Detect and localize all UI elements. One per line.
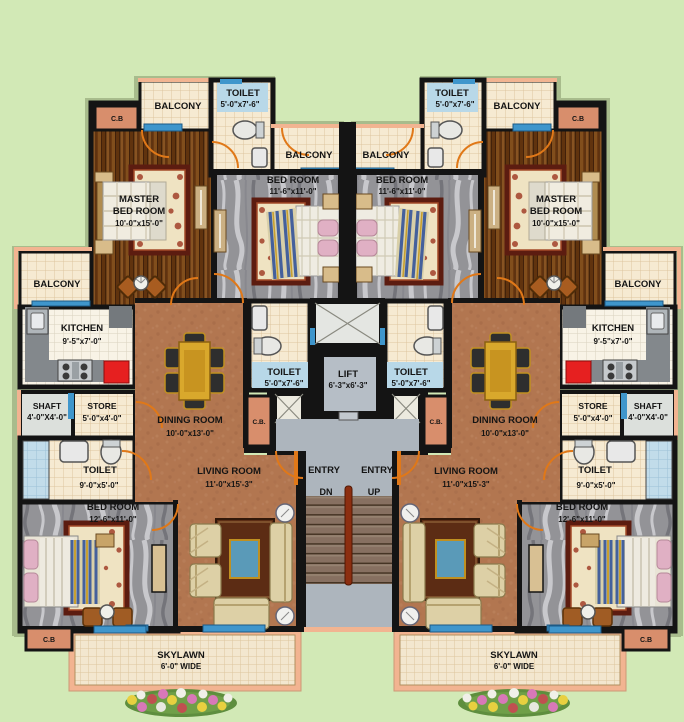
svg-text:BALCONY: BALCONY <box>155 101 203 112</box>
svg-text:BED ROOM: BED ROOM <box>87 502 139 513</box>
svg-text:5'-0"x4'-0": 5'-0"x4'-0" <box>574 414 613 423</box>
svg-text:BALCONY: BALCONY <box>363 150 411 161</box>
svg-text:DN: DN <box>320 487 333 497</box>
svg-text:11'-6"x11'-0": 11'-6"x11'-0" <box>270 187 317 196</box>
svg-text:BED ROOM: BED ROOM <box>556 502 608 513</box>
svg-text:11'-0"x15'-3": 11'-0"x15'-3" <box>442 480 490 489</box>
svg-text:BED ROOM: BED ROOM <box>267 175 319 186</box>
svg-text:C.B: C.B <box>43 637 55 644</box>
svg-text:5'-0"x7'-6": 5'-0"x7'-6" <box>436 100 475 109</box>
svg-text:BED ROOM: BED ROOM <box>113 206 165 217</box>
svg-text:MASTER: MASTER <box>536 194 576 205</box>
svg-text:TOILET: TOILET <box>435 88 469 99</box>
svg-text:6'-3"x6'-3": 6'-3"x6'-3" <box>329 381 368 390</box>
svg-text:STORE: STORE <box>87 401 116 411</box>
svg-text:9'-5"x7'-0": 9'-5"x7'-0" <box>63 337 102 346</box>
svg-text:C.B: C.B <box>572 116 584 123</box>
svg-text:SHAFT: SHAFT <box>33 401 62 411</box>
svg-text:9'-5"x7'-0": 9'-5"x7'-0" <box>594 337 633 346</box>
svg-text:C.B: C.B <box>111 116 123 123</box>
svg-text:12'-6"x11'-0": 12'-6"x11'-0" <box>89 515 137 524</box>
svg-text:SKYLAWN: SKYLAWN <box>157 650 205 661</box>
svg-text:ENTRY: ENTRY <box>361 465 394 476</box>
svg-text:5'-0"x4'-0": 5'-0"x4'-0" <box>83 414 122 423</box>
svg-text:STORE: STORE <box>578 401 607 411</box>
svg-text:10'-0"x13'-0": 10'-0"x13'-0" <box>481 429 529 438</box>
svg-text:C.B.: C.B. <box>253 419 266 426</box>
svg-text:11'-0"x15'-3": 11'-0"x15'-3" <box>205 480 253 489</box>
svg-text:DINING ROOM: DINING ROOM <box>157 415 223 426</box>
svg-text:5'-0"x7'-6": 5'-0"x7'-6" <box>265 379 304 388</box>
svg-text:LIVING ROOM: LIVING ROOM <box>434 466 498 477</box>
svg-text:SHAFT: SHAFT <box>634 401 663 411</box>
svg-text:10'-0"x15'-0": 10'-0"x15'-0" <box>115 219 163 228</box>
svg-text:11'-6"x11'-0": 11'-6"x11'-0" <box>379 187 426 196</box>
svg-text:9'-0"x5'-0": 9'-0"x5'-0" <box>80 481 119 490</box>
svg-text:BALCONY: BALCONY <box>615 279 663 290</box>
svg-text:TOILET: TOILET <box>394 367 428 378</box>
svg-text:6'-0" WIDE: 6'-0" WIDE <box>494 662 535 671</box>
svg-text:BALCONY: BALCONY <box>494 101 542 112</box>
svg-text:BALCONY: BALCONY <box>34 279 82 290</box>
svg-text:BALCONY: BALCONY <box>286 150 334 161</box>
svg-text:6'-0" WIDE: 6'-0" WIDE <box>161 662 202 671</box>
svg-text:LIFT: LIFT <box>338 369 358 380</box>
svg-text:KITCHEN: KITCHEN <box>61 323 103 334</box>
svg-text:12'-6"x11'-0": 12'-6"x11'-0" <box>558 515 606 524</box>
svg-text:4'-0"X4'-0": 4'-0"X4'-0" <box>27 413 67 422</box>
svg-text:C.B: C.B <box>640 637 652 644</box>
svg-text:BED ROOM: BED ROOM <box>376 175 428 186</box>
svg-text:4'-0"X4'-0": 4'-0"X4'-0" <box>628 413 668 422</box>
svg-text:TOILET: TOILET <box>226 88 260 99</box>
svg-text:TOILET: TOILET <box>83 465 117 476</box>
svg-text:5'-0"x7'-6": 5'-0"x7'-6" <box>221 100 260 109</box>
svg-text:DINING ROOM: DINING ROOM <box>472 415 538 426</box>
svg-text:C.B.: C.B. <box>430 419 443 426</box>
svg-text:UP: UP <box>368 487 381 497</box>
svg-text:10'-0"x13'-0": 10'-0"x13'-0" <box>166 429 214 438</box>
svg-text:BED ROOM: BED ROOM <box>530 206 582 217</box>
svg-text:10'-0"x15'-0": 10'-0"x15'-0" <box>532 219 580 228</box>
svg-text:KITCHEN: KITCHEN <box>592 323 634 334</box>
svg-text:SKYLAWN: SKYLAWN <box>490 650 538 661</box>
svg-text:TOILET: TOILET <box>578 465 612 476</box>
svg-text:9'-0"x5'-0": 9'-0"x5'-0" <box>577 481 616 490</box>
svg-text:5'-0"x7'-6": 5'-0"x7'-6" <box>392 379 431 388</box>
svg-text:TOILET: TOILET <box>267 367 301 378</box>
svg-text:ENTRY: ENTRY <box>308 465 341 476</box>
svg-text:MASTER: MASTER <box>119 194 159 205</box>
svg-text:LIVING ROOM: LIVING ROOM <box>197 466 261 477</box>
